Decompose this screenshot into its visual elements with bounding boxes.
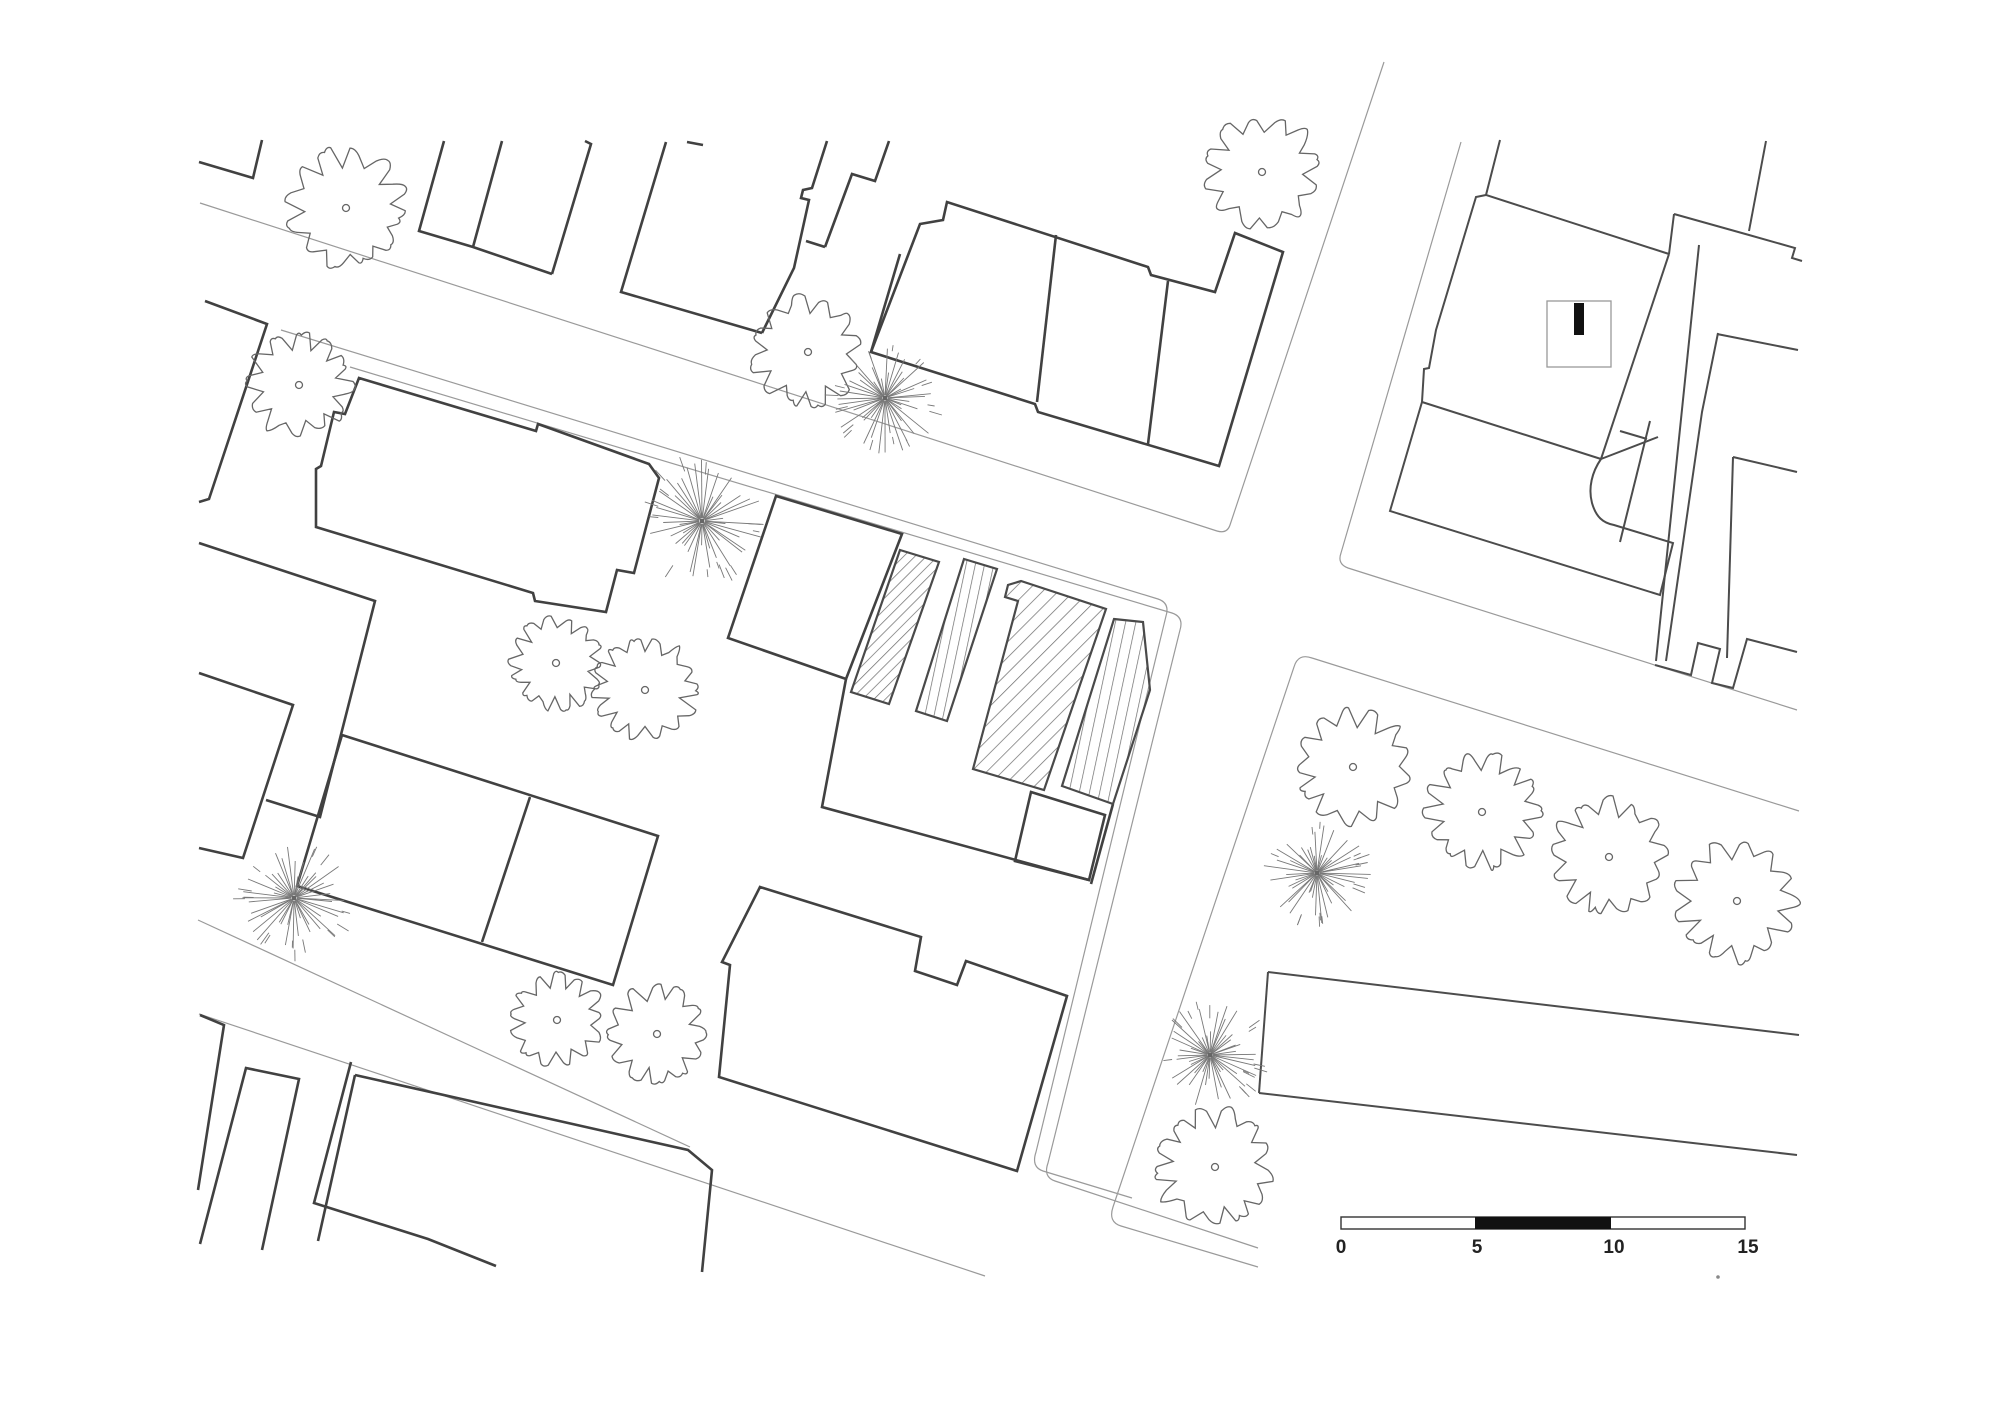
svg-text:0: 0: [1336, 1237, 1347, 1258]
svg-text:15: 15: [1737, 1237, 1759, 1258]
svg-text:10: 10: [1603, 1237, 1624, 1258]
svg-text:5: 5: [1472, 1237, 1483, 1258]
